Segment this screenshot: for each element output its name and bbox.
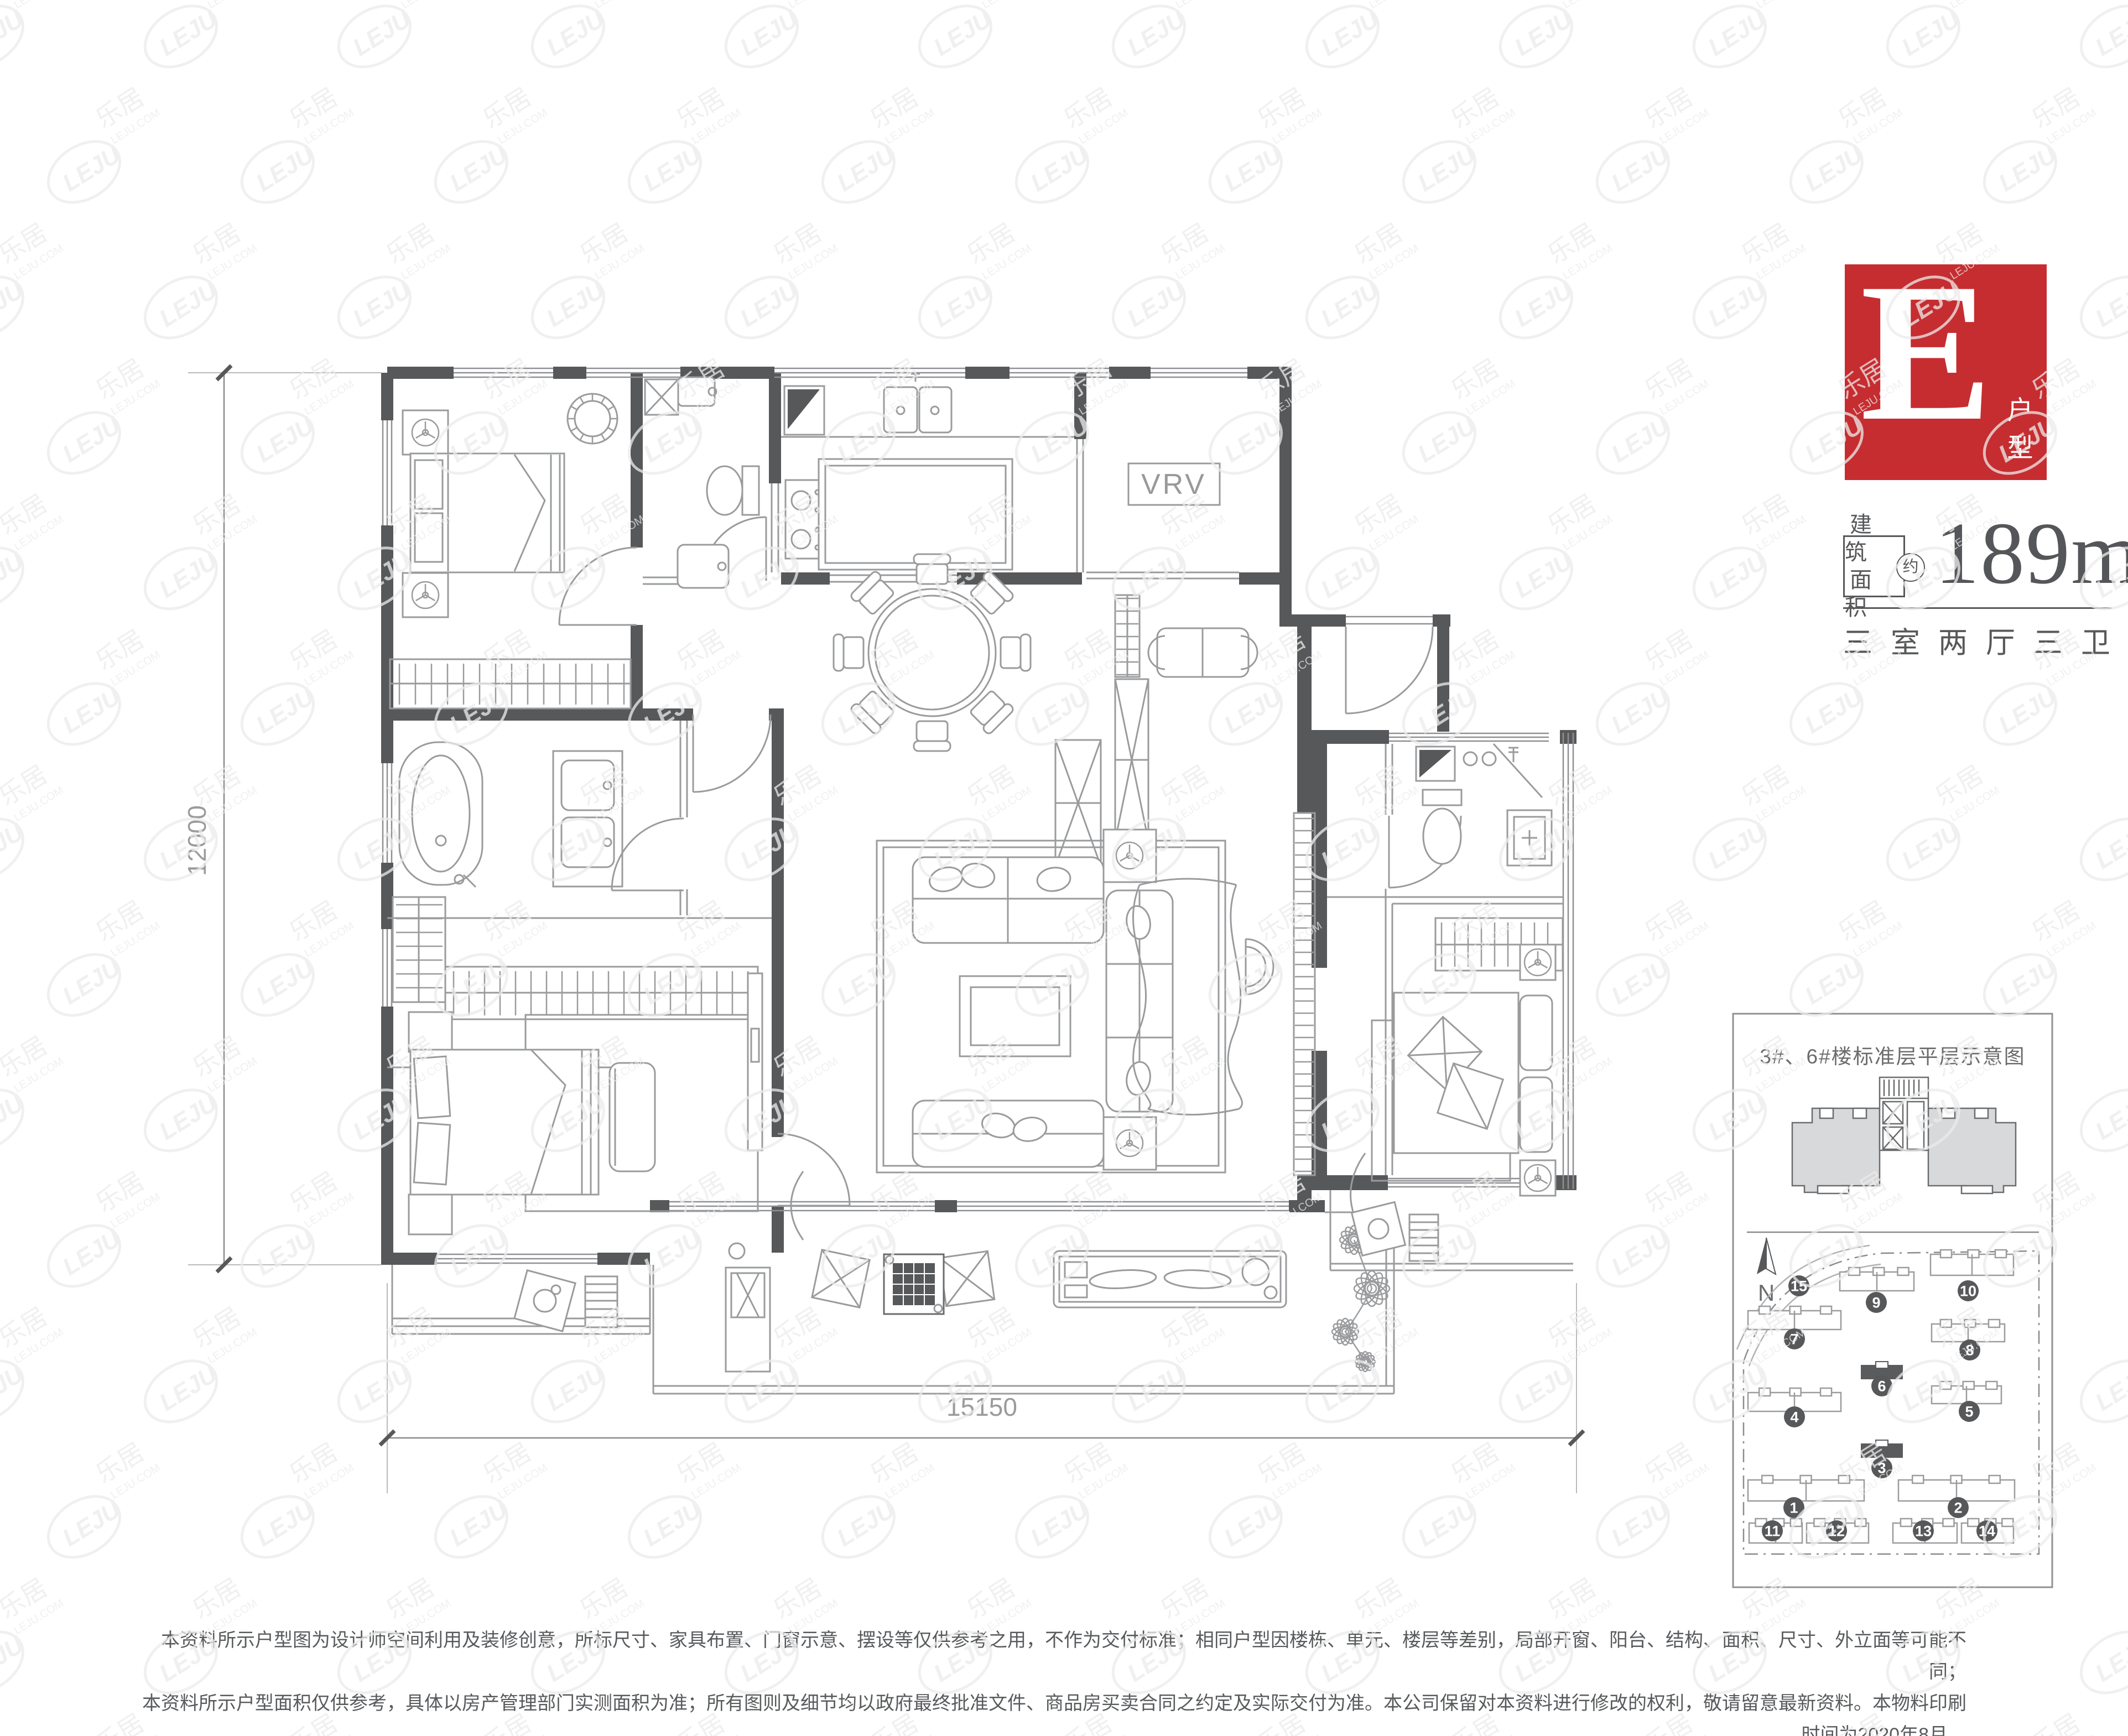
svg-text:10: 10 <box>1960 1283 1976 1300</box>
foyer <box>1055 595 1257 866</box>
dim-height: 12000 <box>183 805 211 876</box>
area-label-line2: 面积 <box>1845 566 1903 622</box>
svg-text:5: 5 <box>1965 1404 1973 1420</box>
svg-text:14: 14 <box>1979 1523 1995 1540</box>
svg-text:13: 13 <box>1915 1523 1932 1540</box>
svg-text:12: 12 <box>1828 1523 1845 1540</box>
dining-area <box>834 554 1031 751</box>
dim-width: 15150 <box>946 1393 1017 1421</box>
area-value: 189m2 <box>1935 502 2128 604</box>
disclaimer-line2: 本资料所示户型面积仅供参考，具体以房产管理部门实测面积为准；所有图则及细节均以政… <box>141 1688 1966 1736</box>
floor-plan: VRV <box>0 0 2128 1736</box>
site-buildings: 123456789101112131415 <box>1748 1250 2015 1543</box>
unit-type-card: E 户型 <box>1845 264 2047 480</box>
living-room <box>877 830 1273 1172</box>
floorplan-page: VRV <box>0 0 2128 1736</box>
site-panel-title: 3#、6#楼标准层平层示意图 <box>1733 1040 2052 1070</box>
unit-letter: E <box>1860 249 1992 457</box>
vrv-label: VRV <box>1141 468 1206 501</box>
svg-text:8: 8 <box>1965 1342 1974 1359</box>
svg-text:9: 9 <box>1872 1295 1880 1311</box>
site-panel: N 123456789101112131415 <box>1733 1014 2052 1587</box>
bathroom-master <box>399 742 622 887</box>
area-number: 189 <box>1935 504 2071 602</box>
svg-text:6: 6 <box>1877 1378 1886 1395</box>
area-approx-badge: 约 <box>1896 553 1925 582</box>
layout-label: 三室两厅三卫 <box>1843 619 2128 661</box>
key-plan <box>1792 1077 2016 1193</box>
walk-in-closet <box>393 897 758 1019</box>
terrace-master <box>514 1270 617 1331</box>
svg-text:1: 1 <box>1789 1500 1798 1516</box>
vrv-room: VRV <box>1128 463 1220 505</box>
svg-text:3: 3 <box>1877 1460 1886 1477</box>
svg-text:11: 11 <box>1765 1523 1781 1540</box>
svg-text:7: 7 <box>1790 1331 1798 1348</box>
disclaimer: 本资料所示户型图为设计师空间利用及装修创意，所标尺寸、家具布置、门窗示意、摆设等… <box>141 1625 1966 1736</box>
area-unit: m <box>2071 504 2128 602</box>
bedroom-top-left <box>390 394 631 708</box>
svg-text:15: 15 <box>1791 1278 1807 1295</box>
north-arrow-icon: N <box>1757 1238 1776 1306</box>
disclaimer-line1: 本资料所示户型图为设计师空间利用及装修创意，所标尺寸、家具布置、门窗示意、摆设等… <box>141 1625 1966 1688</box>
screen-slats <box>1295 819 1314 1171</box>
area-row: 建筑 面积 约 189m2 <box>1843 525 2120 608</box>
svg-text:2: 2 <box>1954 1500 1962 1516</box>
bathroom-top <box>645 377 759 588</box>
master-bedroom <box>409 973 803 1240</box>
kitchen <box>781 374 1074 570</box>
unit-type-label: 户型 <box>2006 392 2035 467</box>
balcony-main <box>726 1243 1286 1372</box>
svg-text:4: 4 <box>1790 1409 1798 1426</box>
area-label-line1: 建筑 <box>1845 511 1903 566</box>
area-divider <box>1843 607 2111 609</box>
